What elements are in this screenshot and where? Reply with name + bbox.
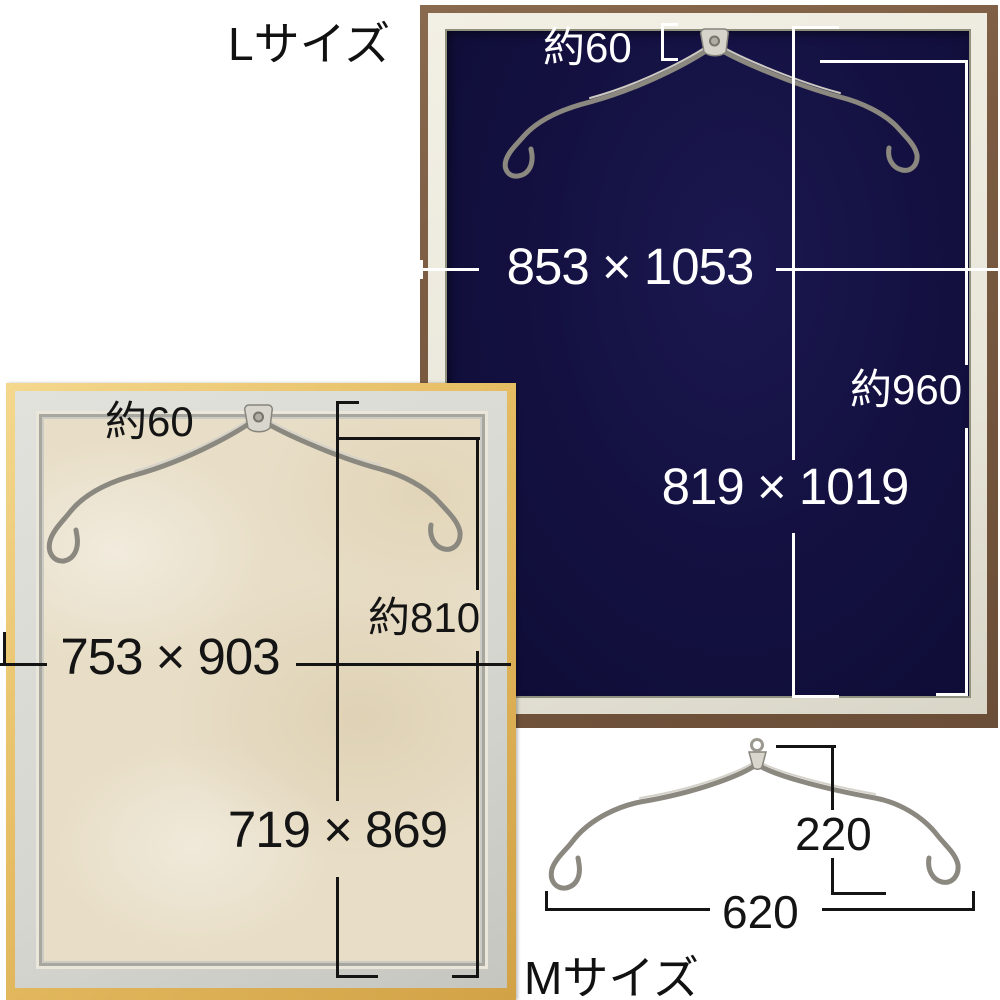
m-frame-inner-height-line-lower: [336, 877, 339, 978]
l-hook-gap-label: 約60: [543, 26, 632, 70]
l-outer-width-tick-left: [420, 260, 423, 279]
m-frame-hang-height-label: 約810: [368, 596, 480, 640]
l-inner-height-line-lower: [792, 533, 795, 698]
m-frame-hang-height-foot: [452, 975, 479, 978]
l-size-label: Lサイズ: [228, 8, 390, 74]
hanger-l-mount-hole: [710, 37, 719, 46]
l-hook-gap-bracket: [661, 23, 664, 61]
l-hang-height-label: 約960: [850, 368, 962, 412]
m-hanger-width-line-right: [822, 908, 975, 911]
hanger-m-frame-mount-hole: [254, 413, 263, 422]
hanger-m-ring: [752, 740, 763, 751]
m-frame-outer-width-tick-left: [3, 632, 6, 666]
m-frame-outer-dimensions-label: 753 × 903: [44, 630, 296, 684]
l-hang-height-foot: [936, 693, 968, 696]
m-size-label: Mサイズ: [524, 942, 699, 1000]
l-hook-gap-bracket-bottom: [661, 58, 678, 61]
l-inner-dimensions-label: 819 × 1019: [630, 460, 940, 514]
m-frame-inner-height-line-upper: [336, 401, 339, 801]
m-hanger-width-line-left: [545, 908, 710, 911]
hanger-l-wire-right: [714, 45, 917, 170]
m-frame-hang-height-line-lower: [476, 651, 479, 978]
m-frame-hook-gap-tick-top: [336, 401, 359, 404]
l-inner-height-foot: [792, 695, 839, 698]
m-hanger-drop-tick-top: [776, 745, 836, 748]
m-frame-hang-height-line-upper: [476, 437, 479, 590]
m-hanger-width-label: 620: [722, 888, 799, 936]
l-outer-width-line-left: [421, 268, 479, 271]
l-hang-height-line-upper: [965, 60, 968, 365]
l-inner-height-line-upper: [792, 26, 795, 460]
m-frame-outer-width-line-right: [296, 663, 511, 666]
m-hanger-width-tick-right: [972, 891, 975, 911]
m-frame-inner-height-foot: [336, 975, 378, 978]
l-hang-height-tick-top: [820, 60, 968, 63]
m-hanger-drop-foot: [831, 892, 886, 895]
m-frame-inner-dimensions-label: 719 × 869: [210, 803, 465, 857]
l-hook-gap-bracket-top: [661, 23, 678, 26]
l-hang-height-line-lower: [965, 428, 968, 696]
wire-hanger-m: [540, 730, 980, 900]
m-hanger-drop-line-lower: [831, 858, 834, 895]
l-outer-dimensions-label: 853 × 1053: [480, 240, 780, 294]
m-hanger-width-tick-left: [545, 891, 548, 911]
l-inner-height-tick-top: [792, 26, 839, 29]
m-frame-hook-gap-label: 約60: [105, 400, 194, 444]
m-hanger-drop-label: 220: [795, 810, 872, 858]
product-dimension-diagram: 約60 853 × 1053 819 × 1019 約960 約60 約810 …: [0, 0, 1000, 1000]
hanger-m-wire-left: [551, 764, 757, 888]
m-frame-outer-width-line-left: [0, 663, 47, 666]
m-frame-hang-height-tick-top: [336, 437, 480, 440]
m-hanger-drop-line-upper: [831, 745, 834, 810]
